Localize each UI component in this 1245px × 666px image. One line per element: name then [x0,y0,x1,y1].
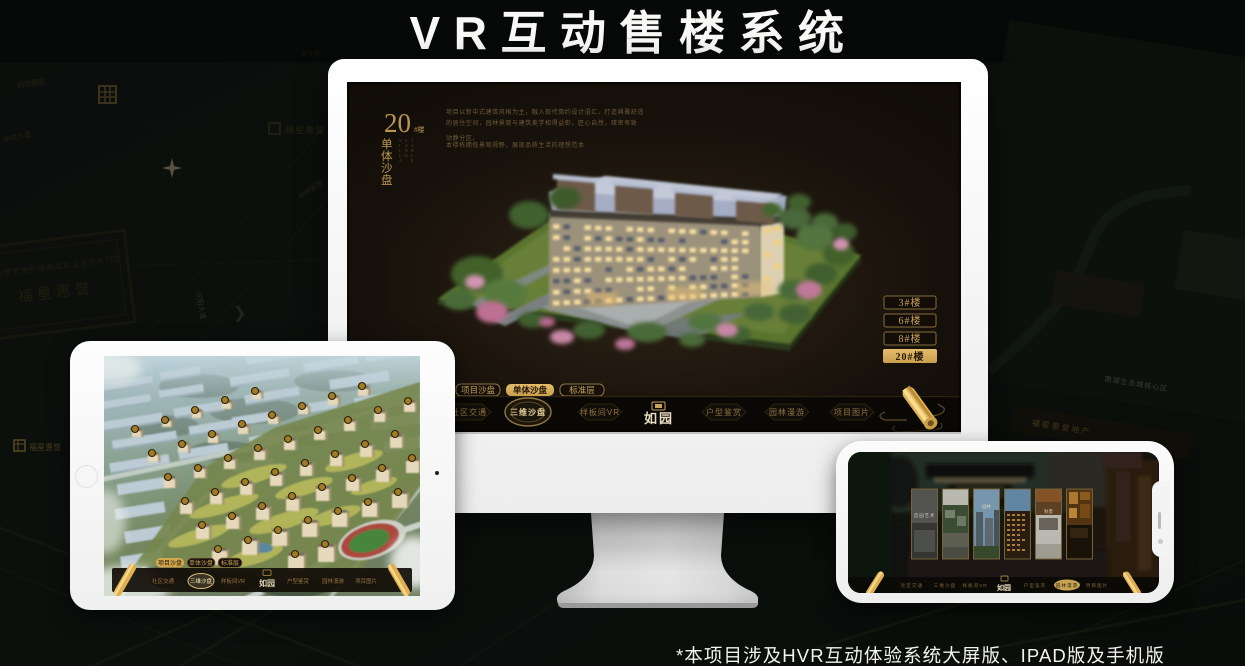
svg-text:3#楼: 3#楼 [899,296,922,309]
svg-text:社区交通: 社区交通 [152,577,175,585]
svg-text:动静分区。: 动静分区。 [446,134,479,142]
svg-text:福星惠誉: 福星惠誉 [29,442,61,452]
svg-text:项目图片: 项目图片 [834,407,870,417]
svg-text:三维沙盘: 三维沙盘 [934,582,956,589]
svg-text:园林漫游: 园林漫游 [1056,582,1078,589]
svg-text:如园: 如园 [644,411,674,426]
svg-text:三维沙盘: 三维沙盘 [510,407,546,417]
svg-text:户型鉴赏: 户型鉴赏 [706,407,742,417]
svg-text:样板间VR: 样板间VR [221,577,245,585]
svg-text:的居住空间，园林景观与建筑美学相得益彰，匠心自然，疏密有致: 的居住空间，园林景观与建筑美学相得益彰，匠心自然，疏密有致 [446,119,637,127]
svg-text:三维沙盘: 三维沙盘 [190,577,213,585]
svg-text:项目沙盘: 项目沙盘 [461,385,496,395]
svg-text:标准层: 标准层 [569,385,595,395]
svg-text:社区交通: 社区交通 [451,407,487,417]
svg-text:样板间VR: 样板间VR [962,582,987,589]
svg-text:单体沙盘: 单体沙盘 [189,559,213,567]
svg-text:❯: ❯ [233,305,246,322]
svg-text:社区交通: 社区交通 [901,582,923,589]
svg-text:如园: 如园 [259,578,275,588]
svg-text:园林漫游: 园林漫游 [322,577,345,585]
svg-text:20#楼: 20#楼 [896,350,925,363]
svg-text:20: 20 [384,108,411,138]
svg-text:#楼: #楼 [414,125,425,134]
svg-text:项目图片: 项目图片 [1086,582,1108,589]
svg-text:项目以新中式建筑风格为主，融入现代简约设计语汇，打造典雅舒适: 项目以新中式建筑风格为主，融入现代简约设计语汇，打造典雅舒适 [446,108,644,116]
svg-text:如园: 如园 [997,583,1011,592]
svg-text:户型鉴赏: 户型鉴赏 [1024,582,1046,589]
svg-text:单体沙盘: 单体沙盘 [513,385,548,395]
svg-text:福星惠誉: 福星惠誉 [285,124,325,135]
svg-text:园林漫游: 园林漫游 [769,407,805,417]
svg-text:项目沙盘: 项目沙盘 [158,559,182,567]
svg-text:8#楼: 8#楼 [899,332,922,345]
svg-text:项目图片: 项目图片 [355,577,377,585]
svg-text:户型鉴赏: 户型鉴赏 [287,577,310,585]
svg-text:样板间VR: 样板间VR [580,407,620,417]
svg-text:6#楼: 6#楼 [899,314,922,327]
svg-text:标准层: 标准层 [221,559,239,567]
